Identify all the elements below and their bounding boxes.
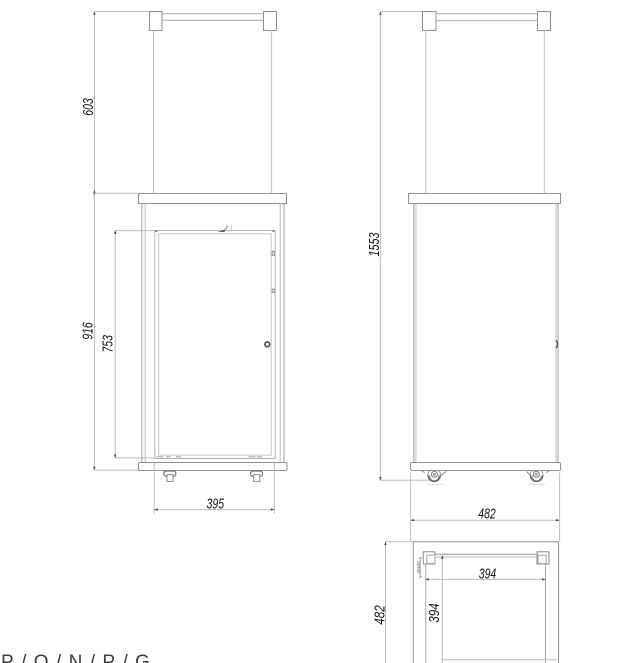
svg-text:394: 394	[427, 603, 443, 623]
svg-text:20x20: 20x20	[416, 561, 421, 575]
svg-text:394: 394	[479, 567, 497, 583]
svg-text:916: 916	[81, 322, 97, 340]
svg-text:395: 395	[207, 497, 225, 513]
svg-text:482: 482	[373, 605, 389, 625]
svg-text:482: 482	[478, 507, 496, 523]
svg-text:1553: 1553	[367, 233, 383, 257]
svg-text:753: 753	[101, 335, 117, 353]
svg-text:603: 603	[81, 98, 97, 116]
